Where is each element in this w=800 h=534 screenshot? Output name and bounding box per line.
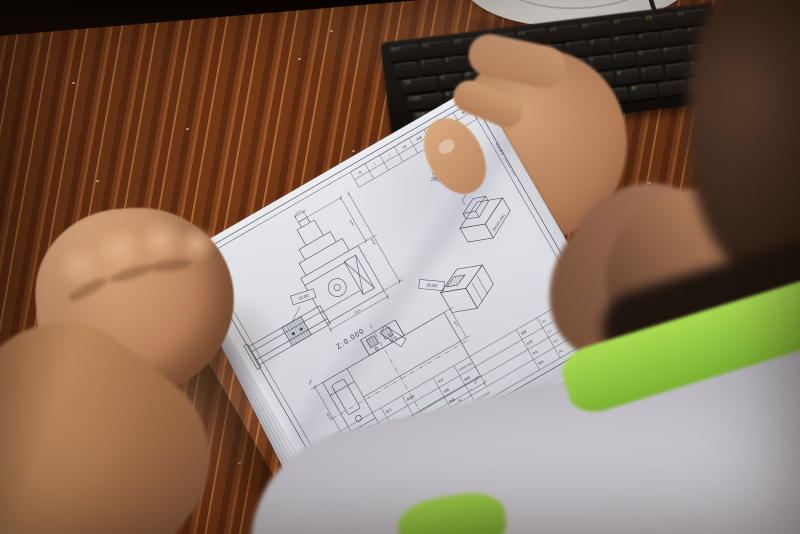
svg-text:20166-A01: 20166-A01 [492, 213, 507, 232]
dust-speck [298, 58, 301, 60]
svg-text:2版: 2版 [402, 144, 408, 150]
dust-speck [186, 128, 189, 130]
keyboard-key: 1 [419, 59, 443, 76]
keyboard-key: - [661, 29, 685, 46]
callout-12: 12.00 [290, 289, 316, 305]
svg-text:1:1: 1:1 [547, 328, 553, 334]
svg-text:紫铜: 紫铜 [463, 375, 471, 382]
keyboard-key: , [658, 80, 686, 98]
svg-text:料号: 料号 [437, 377, 445, 384]
svg-text:采镶件: 采镶件 [405, 393, 416, 402]
svg-text:54.00: 54.00 [348, 218, 355, 226]
svg-text:1: 1 [373, 162, 377, 166]
svg-text:2: 2 [388, 153, 392, 157]
svg-text:90°±1': 90°±1' [473, 375, 480, 385]
svg-text:品名: 品名 [385, 407, 393, 414]
front-view [271, 184, 408, 332]
dust-speck [72, 82, 75, 84]
keyboard-key: 2 [443, 56, 467, 73]
svg-text:66.00: 66.00 [354, 307, 362, 314]
keyboard-key: 0 [637, 32, 661, 49]
iso-view-2 [435, 257, 500, 320]
callout-26: 26.00 [419, 279, 445, 290]
svg-text:mm: mm [553, 338, 560, 344]
keyboard-key: ; [665, 62, 689, 79]
svg-text:改模: 改模 [416, 135, 423, 141]
keyboard-key: I [612, 52, 636, 69]
svg-text:比例: 比例 [525, 339, 533, 346]
svg-text:1/1: 1/1 [541, 318, 547, 324]
keyboard-key: ` [395, 62, 419, 79]
keyboard-key: K [616, 68, 640, 85]
z-reference-label: Z:0.000 [334, 326, 366, 351]
keyboard-key: 9 [613, 35, 637, 52]
svg-text:单位: 单位 [531, 349, 539, 356]
svg-text:版: 版 [358, 170, 363, 175]
svg-text:版本: 版本 [537, 358, 545, 365]
svg-text:A1: A1 [558, 348, 564, 353]
svg-text:材质: 材质 [442, 387, 450, 394]
keyboard-key: P [662, 46, 686, 63]
keyboard-key: M [629, 83, 657, 101]
dust-speck [96, 180, 99, 182]
svg-text:20166-A01: 20166-A01 [458, 361, 473, 372]
keyboard-key: L [640, 65, 664, 82]
dust-speck [238, 462, 241, 464]
svg-text:26.00: 26.00 [426, 282, 438, 288]
svg-text:6.00: 6.00 [308, 379, 314, 386]
dust-speck [330, 30, 333, 32]
keyboard-key: O [637, 49, 661, 66]
svg-text:张数: 张数 [520, 329, 528, 336]
photo-scene: EscF1F2F3F4F5F6F7F8F9`1234567890-=TabQWE… [0, 0, 800, 534]
keyboard-key: 8 [589, 38, 613, 55]
svg-text:数量: 数量 [448, 397, 456, 404]
